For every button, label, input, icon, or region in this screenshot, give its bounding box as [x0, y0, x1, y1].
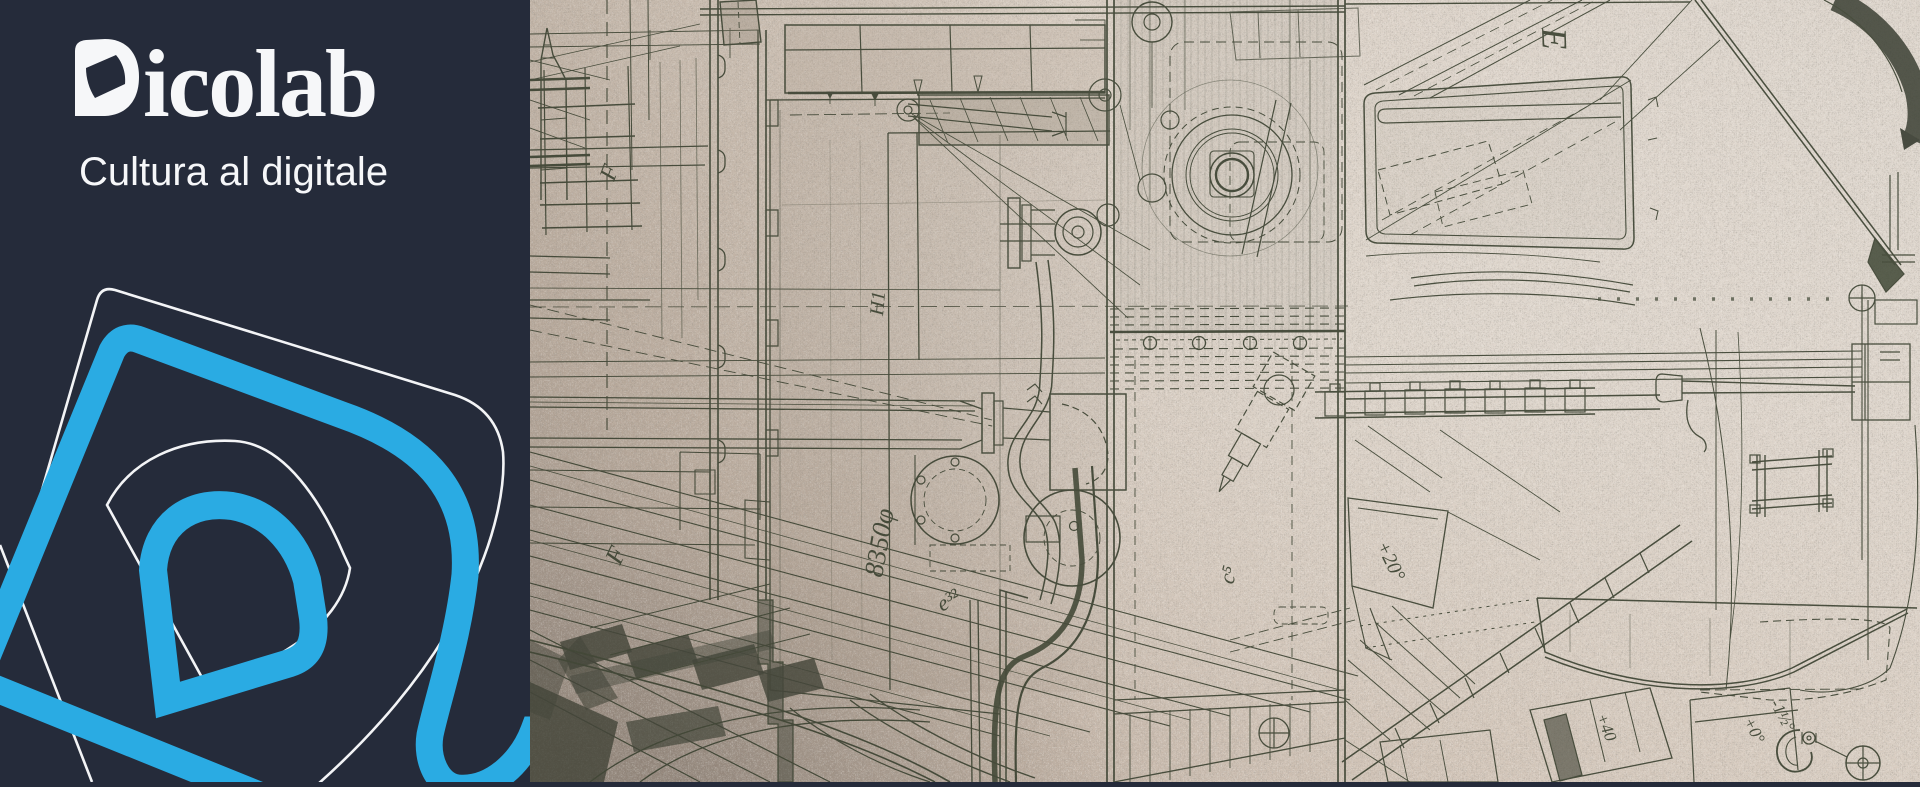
svg-text:icolab: icolab	[143, 39, 376, 129]
svg-text:E: E	[1534, 26, 1575, 50]
svg-text:H1: H1	[866, 290, 890, 317]
